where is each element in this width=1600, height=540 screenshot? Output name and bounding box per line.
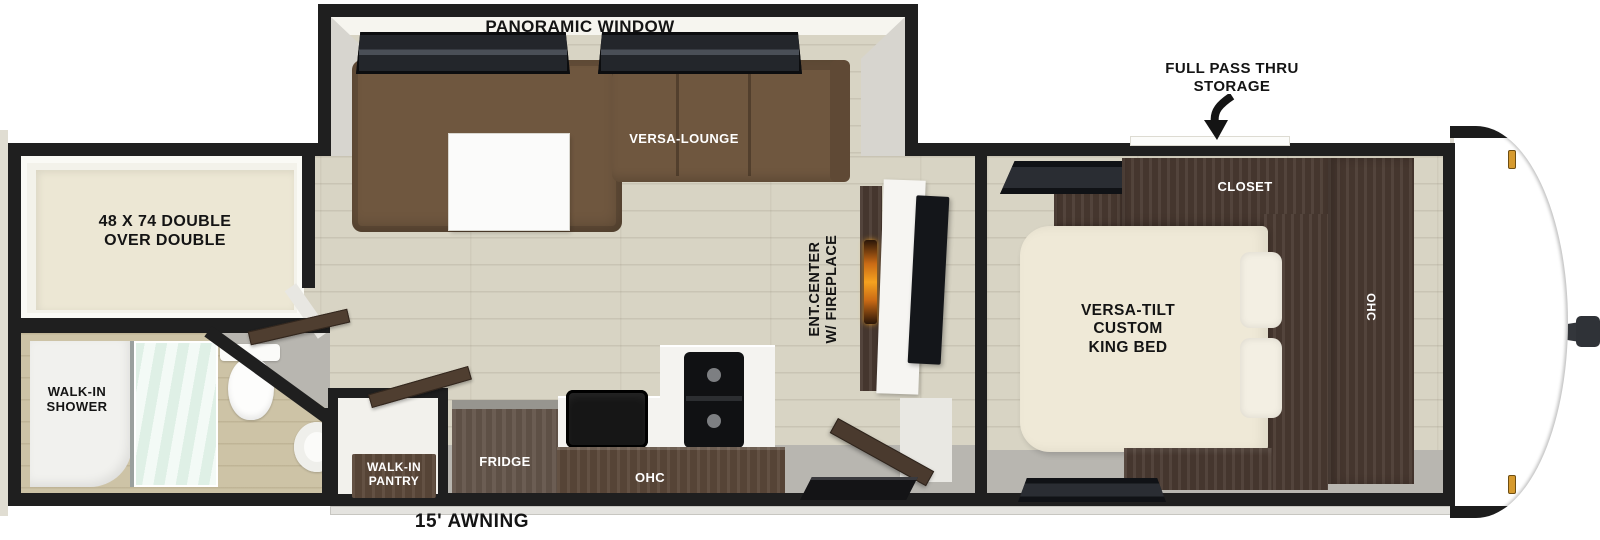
clearance-light <box>1508 150 1516 169</box>
entry-steps <box>800 477 918 500</box>
front-cap-trim-top <box>1450 126 1568 138</box>
panoramic-window-left <box>356 32 570 74</box>
sink-divider <box>686 396 742 401</box>
bedroom-window-bottom <box>1018 478 1166 502</box>
range-cooktop <box>566 390 648 448</box>
dinette-table <box>449 134 569 230</box>
wall-living-bedroom-divider <box>975 156 987 493</box>
hitch-ball-mount <box>1576 316 1600 347</box>
full-pass-thru-storage-label: FULL PASS THRU STORAGE <box>1132 60 1332 95</box>
kitchen-ohc-label: OHC <box>590 470 710 485</box>
versa-lounge-label: VERSA-LOUNGE <box>608 131 760 146</box>
slideout-wall-right <box>905 4 918 156</box>
slideout-wall-top <box>318 4 918 17</box>
front-cap <box>1450 126 1568 518</box>
bed-pillow <box>1240 252 1282 328</box>
storage-callout-arrow <box>1196 94 1242 142</box>
bunk-label: 48 X 74 DOUBLE OVER DOUBLE <box>45 213 285 251</box>
bedroom-ohc-label: OHC <box>1364 266 1378 348</box>
sink-bowl-drain <box>707 414 721 428</box>
fridge-label: FRIDGE <box>452 454 558 469</box>
awning-label: 15' AWNING <box>382 511 562 533</box>
front-cap-trim-bottom <box>1450 506 1568 518</box>
wall-front <box>1443 143 1455 506</box>
sofa-right-armrest <box>830 60 850 182</box>
shower-glass-door <box>130 341 218 487</box>
slideout-wall-left <box>318 4 331 156</box>
versa-lounge-sofa-seats <box>612 60 850 182</box>
ent-center-fireplace-label: ENT.CENTER W/ FIREPLACE <box>807 207 841 371</box>
sofa-cushion-divider <box>676 68 679 176</box>
fireplace-flame <box>864 240 877 324</box>
walk-in-shower-label: WALK-IN SHOWER <box>26 384 128 415</box>
sink-bowl-drain <box>707 368 721 382</box>
panoramic-window-label: PANORAMIC WINDOW <box>430 17 730 37</box>
panoramic-window-right <box>598 32 802 74</box>
bed-pillow <box>1240 338 1282 418</box>
king-bed-label: VERSA-TILT CUSTOM KING BED <box>1028 302 1228 357</box>
floorplan-canvas: PANORAMIC WINDOW VERSA-LOUNGE FULL PASS … <box>0 0 1600 540</box>
closet-label: CLOSET <box>1185 179 1305 194</box>
wall-bunk-living-divider <box>302 156 315 288</box>
wall-top-rear-segment <box>8 143 331 156</box>
wall-bottom <box>8 493 1455 506</box>
refrigerator <box>452 400 558 494</box>
sofa-cushion-divider <box>748 68 751 176</box>
walk-in-pantry-label: WALK-IN PANTRY <box>352 460 436 488</box>
rear-exterior-trim <box>0 130 8 516</box>
clearance-light <box>1508 475 1516 494</box>
